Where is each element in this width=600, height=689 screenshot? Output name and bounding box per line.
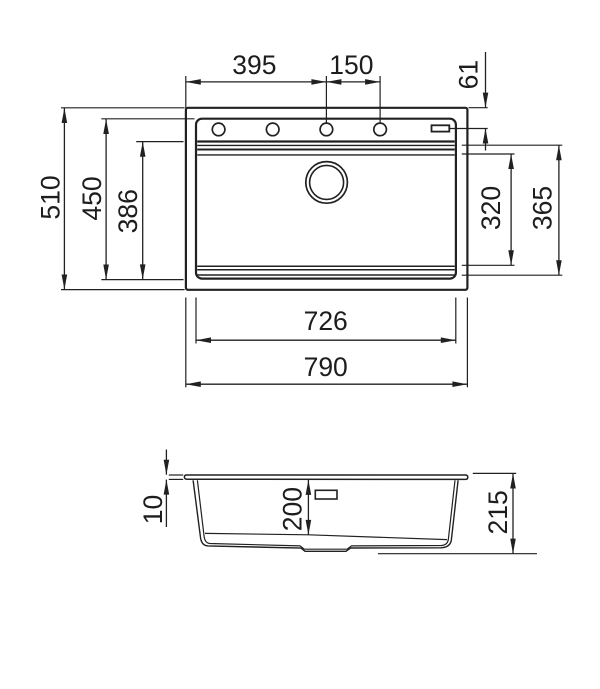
svg-text:61: 61: [454, 60, 484, 89]
svg-text:150: 150: [329, 50, 373, 80]
svg-text:790: 790: [304, 352, 348, 382]
svg-text:200: 200: [278, 487, 308, 531]
svg-text:450: 450: [77, 176, 107, 220]
svg-text:386: 386: [113, 189, 143, 233]
svg-text:510: 510: [35, 175, 65, 219]
svg-text:215: 215: [483, 490, 513, 534]
svg-text:10: 10: [138, 495, 168, 524]
svg-text:320: 320: [476, 186, 506, 230]
svg-text:395: 395: [232, 50, 276, 80]
svg-text:726: 726: [304, 306, 348, 336]
svg-text:365: 365: [528, 186, 558, 230]
